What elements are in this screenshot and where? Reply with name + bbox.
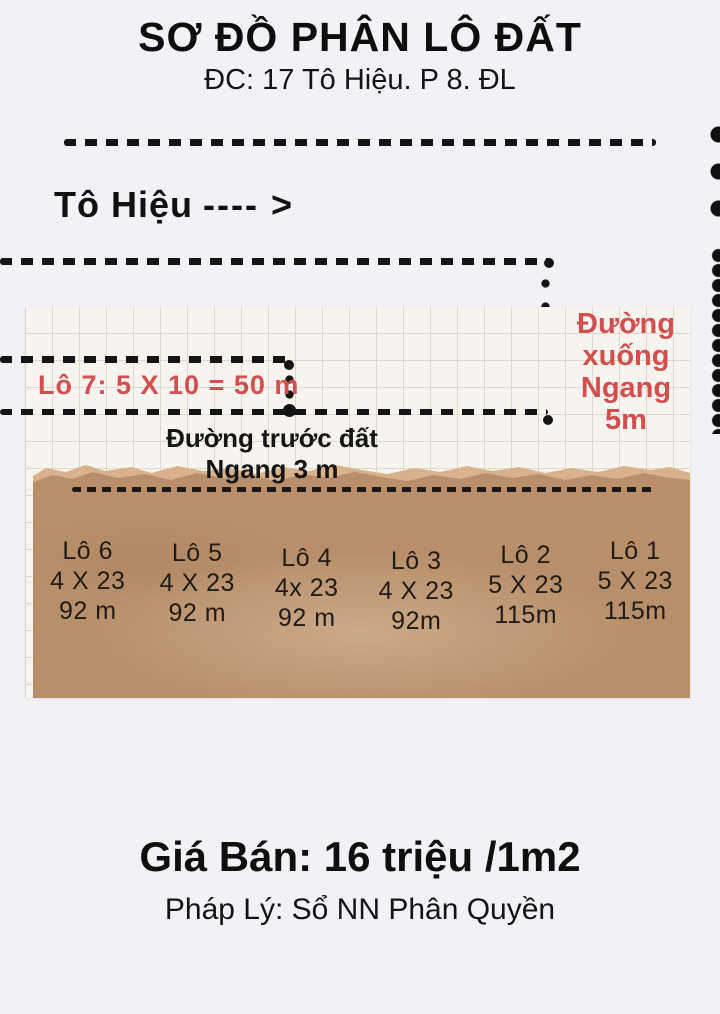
street-direction-arrow: ---- > [203, 184, 294, 225]
address-line: ĐC: 17 Tô Hiệu. P 8. ĐL [0, 64, 720, 97]
lot7-corner-dot [284, 360, 294, 370]
upper-boundary-corner-dot [544, 258, 554, 268]
street-label: Tô Hiệu---- > [54, 184, 294, 226]
plot-labels-row: Lô 64 X 2392 mLô 54 X 2392 mLô 44x 2392 … [33, 536, 690, 626]
page-title: SƠ ĐỒ PHÂN LÔ ĐẤT [0, 14, 720, 61]
top-road-dashed-line [64, 139, 656, 146]
street-name: Tô Hiệu [54, 184, 193, 225]
side-road-label: Đường xuống Ngang 5m [558, 308, 694, 436]
plot-area: 92m [362, 606, 472, 636]
plot-name: Lô 4 [252, 543, 362, 573]
plot-label: Lô 15 X 23115m [581, 536, 691, 626]
plot-name: Lô 2 [471, 540, 581, 570]
plot-dims: 4 X 23 [362, 576, 472, 606]
plot-area: 115m [581, 596, 691, 626]
plot-dims: 4 X 23 [143, 568, 253, 598]
plot-area: 92 m [33, 596, 143, 626]
lot7-label: Lô 7: 5 X 10 = 50 m [38, 370, 299, 401]
plot-label: Lô 64 X 2392 m [33, 536, 143, 626]
plot-label: Lô 54 X 2392 m [143, 538, 253, 628]
front-road-end-dot [543, 415, 553, 425]
legal-line: Pháp Lý: Sổ NN Phân Quyền [0, 893, 720, 927]
lot7-boundary-dashed-line [0, 356, 290, 363]
plot-name: Lô 6 [33, 536, 143, 566]
front-road-label: Đường trước đất Ngang 3 m [132, 423, 412, 485]
plot-dims: 4 X 23 [33, 566, 143, 596]
plot-dims: 5 X 23 [581, 566, 691, 596]
plot-label: Lô 34 X 2392m [362, 546, 472, 636]
plot-name: Lô 1 [581, 536, 691, 566]
upper-boundary-dashed-line [0, 258, 552, 265]
plot-area: 92 m [252, 603, 362, 633]
side-road-line3: Ngang 5m [558, 372, 694, 436]
plot-dims: 5 X 23 [471, 570, 581, 600]
side-road-line2: xuống [558, 340, 694, 372]
land-plot-flyer: SƠ ĐỒ PHÂN LÔ ĐẤT ĐC: 17 Tô Hiệu. P 8. Đ… [0, 0, 720, 1014]
right-edge-dash-marks-upper [710, 116, 720, 220]
front-road-line2: Ngang 3 m [132, 454, 412, 485]
kraft-boundary-dashed-line [72, 487, 657, 492]
side-road-line1: Đường [558, 308, 694, 340]
front-road-line1: Đường trước đất [132, 423, 412, 454]
plot-area: 92 m [143, 598, 253, 628]
plot-dims: 4x 23 [252, 573, 362, 603]
plot-name: Lô 5 [143, 538, 253, 568]
plot-label: Lô 25 X 23115m [471, 540, 581, 630]
plot-label: Lô 44x 2392 m [252, 543, 362, 633]
front-road-dashed-line [0, 409, 548, 415]
right-edge-dash-marks-lower [710, 248, 720, 434]
plot-area: 115m [471, 600, 581, 630]
price-line: Giá Bán: 16 triệu /1m2 [0, 833, 720, 881]
plot-name: Lô 3 [362, 546, 472, 576]
